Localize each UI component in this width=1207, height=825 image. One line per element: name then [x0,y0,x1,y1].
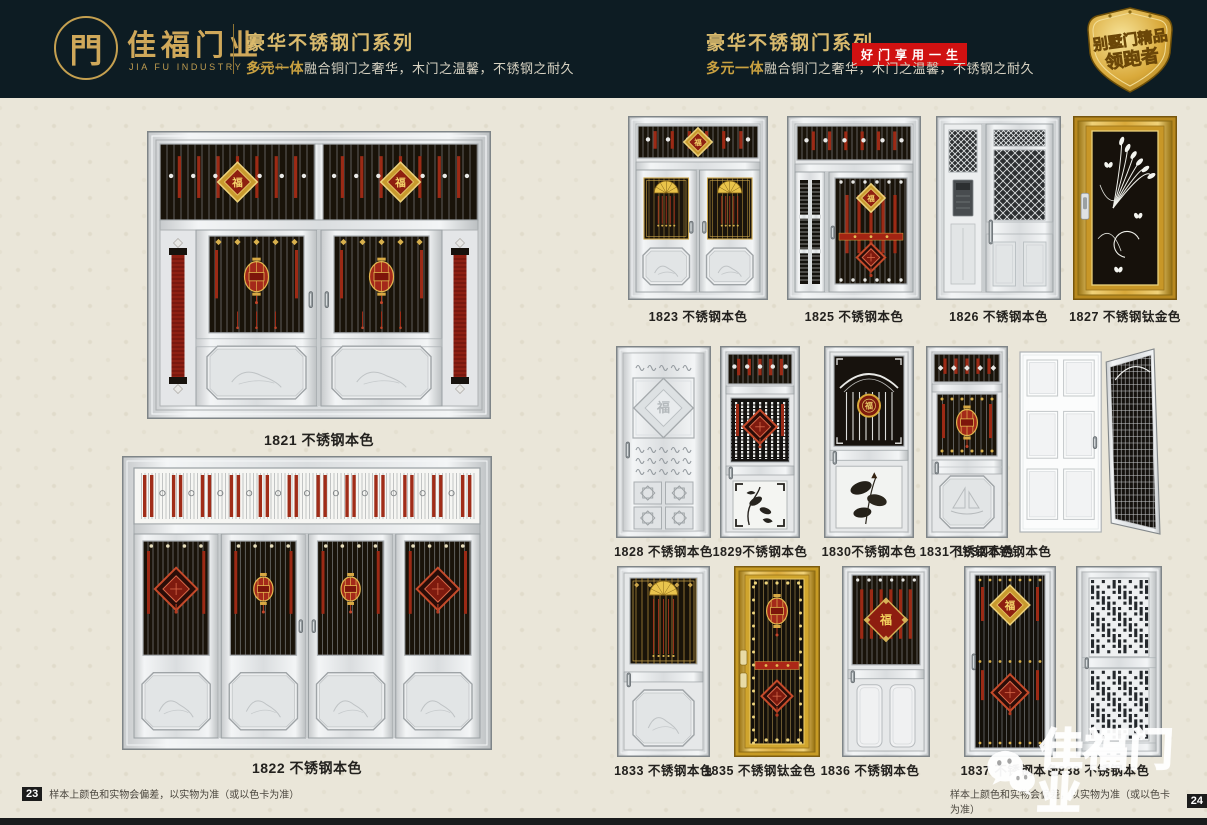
disclaimer-left: 样本上颜色和实物会偏差，以实物为准（或以色卡为准） [49,786,299,801]
svg-text:福: 福 [394,176,406,189]
brand-logo: 門 [54,16,118,80]
door-1828: 福 [616,346,711,538]
door-1826 [936,116,1061,300]
series-title-left: 豪华不锈钢门系列 [246,28,414,55]
series-subtitle-right: 多元一体融合铜门之奢华，木门之温馨，不锈钢之耐久 [706,58,1034,78]
svg-text:福: 福 [879,612,892,627]
series-title-right: 豪华不锈钢门系列 [706,28,874,55]
series-subtitle-left-rest: 融合铜门之奢华，木门之温馨，不锈钢之耐久 [304,61,574,76]
page-number-left: 23 [22,787,42,801]
door-label-1823: 1823 不锈钢本色 [616,306,780,325]
svg-text:福: 福 [1004,599,1016,612]
series-subtitle-right-strong: 多元一体 [706,60,764,76]
left-page-footer: 23 样本上颜色和实物会偏差，以实物为准（或以色卡为准） [22,786,299,801]
svg-text:福: 福 [866,193,875,203]
door-1830: 福 [824,346,914,538]
door-label-1835: 1835 不锈钢钛金色 [690,760,830,779]
wechat-icon [984,742,1038,804]
door-1829 [720,346,800,538]
watermark-brand-text: 佳福门业 [1036,729,1207,817]
door-1831 [926,346,1008,538]
door-label-1836: 1836 不锈钢本色 [810,760,930,779]
door-1823: 福 [628,116,768,300]
door-1836: 福 [842,566,930,757]
door-label-1825: 1825 不锈钢本色 [775,306,933,325]
door-label-1832: 1832不锈钢本色 [944,541,1064,560]
door-1822 [122,456,492,750]
door-label-1822: 1822 不锈钢本色 [122,758,492,778]
header-bar: 門 佳福门业 JIA FU INDUSTRY DOOR 豪华不锈钢门系列 多元一… [0,0,1207,98]
shield-emblem: 别墅门精品 领跑者 [1077,5,1183,95]
series-subtitle-left: 多元一体融合铜门之奢华，木门之温馨，不锈钢之耐久 [246,58,574,78]
door-label-1827: 1827 不锈钢钛金色 [1053,306,1197,325]
series-subtitle-left-strong: 多元一体 [246,60,304,76]
door-label-1826: 1826 不锈钢本色 [924,306,1073,325]
door-1821: 福福 [147,131,491,419]
svg-text:福: 福 [693,137,702,147]
brand-name: 佳福门业 [127,22,263,64]
door-1833 [617,566,710,757]
bottom-edge-strip [0,818,1207,825]
door-1827 [1073,116,1177,300]
svg-text:福: 福 [864,401,873,411]
wechat-watermark: 佳福门业 [984,729,1207,817]
svg-text:福: 福 [231,176,243,189]
series-subtitle-right-rest: 融合铜门之奢华，木门之温馨，不锈钢之耐久 [764,61,1034,76]
brand-logo-glyph: 門 [70,24,103,72]
door-label-1829: 1829不锈钢本色 [700,541,820,560]
svg-text:福: 福 [656,400,670,416]
door-1835 [734,566,820,757]
door-1825: 福 [787,116,921,300]
door-1832 [1018,346,1163,538]
door-label-1821: 1821 不锈钢本色 [147,430,491,450]
header-divider [233,24,234,74]
catalog-spread: 門 佳福门业 JIA FU INDUSTRY DOOR 豪华不锈钢门系列 多元一… [0,0,1207,825]
